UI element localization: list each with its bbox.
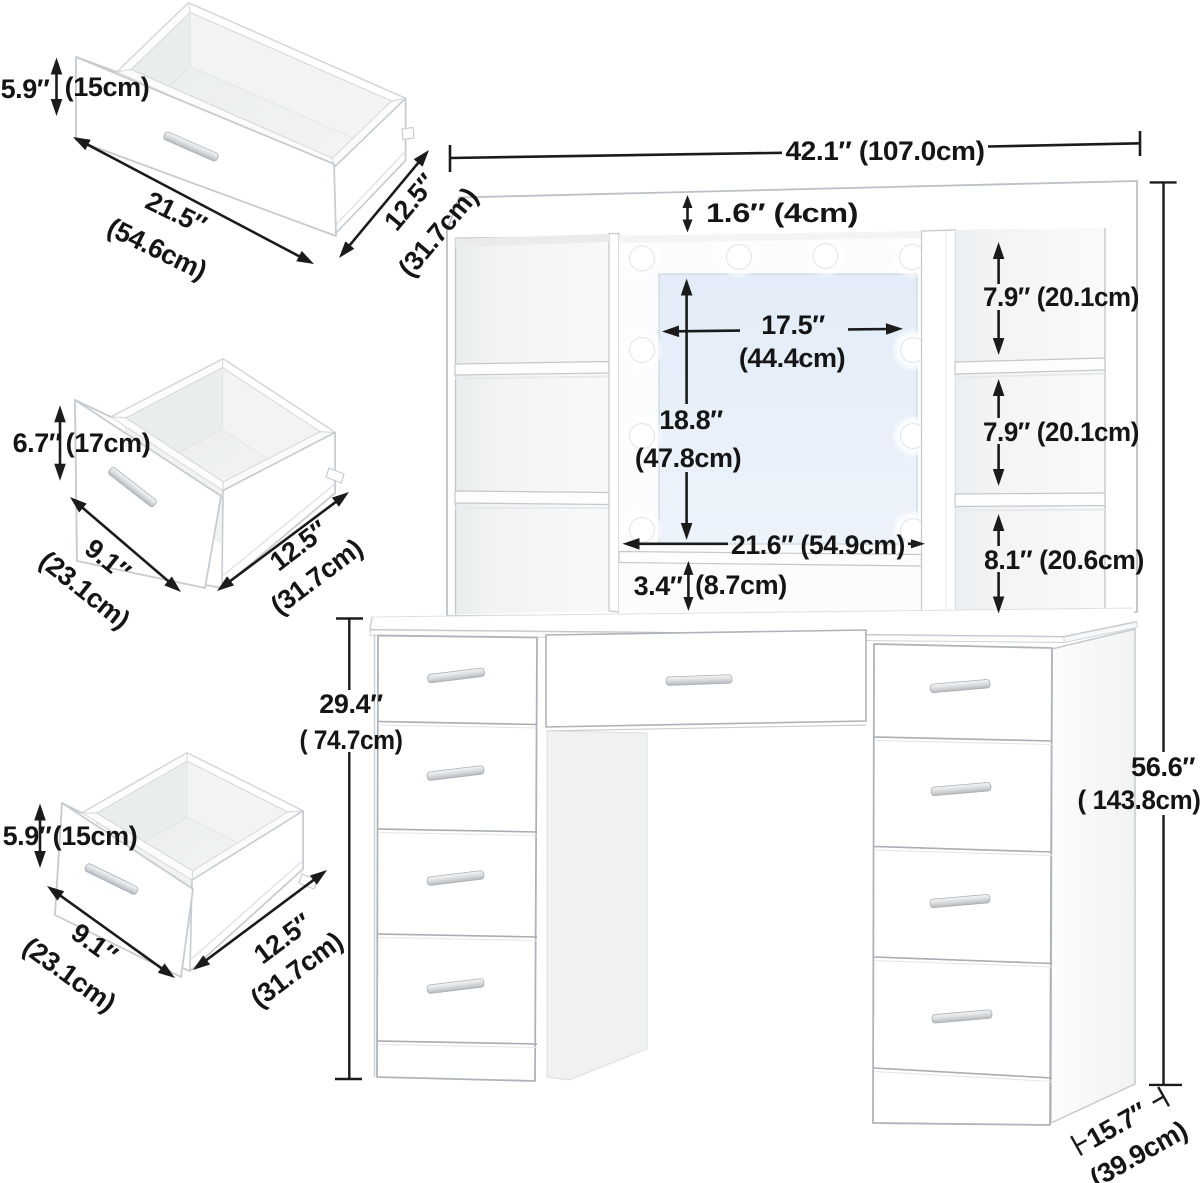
svg-text:(15cm): (15cm) [53, 821, 138, 851]
svg-text:7.9″ (20.1cm): 7.9″ (20.1cm) [983, 417, 1139, 447]
svg-text:6.7″: 6.7″ [13, 428, 62, 458]
svg-text:(15cm): (15cm) [65, 72, 150, 102]
svg-text:1.6″ (4cm): 1.6″ (4cm) [706, 198, 858, 228]
svg-text:( 143.8cm): ( 143.8cm) [1078, 785, 1200, 815]
svg-text:(17cm): (17cm) [66, 428, 151, 458]
svg-text:56.6″: 56.6″ [1131, 752, 1195, 782]
svg-text:18.8″: 18.8″ [659, 405, 723, 435]
svg-text:5.9″: 5.9″ [1, 74, 50, 104]
svg-text:(8.7cm): (8.7cm) [695, 570, 787, 600]
svg-text:( 74.7cm): ( 74.7cm) [300, 725, 403, 755]
svg-text:3.4″: 3.4″ [634, 571, 683, 601]
svg-text:7.9″ (20.1cm): 7.9″ (20.1cm) [983, 282, 1139, 312]
svg-text:5.9″: 5.9″ [3, 821, 52, 851]
svg-text:(47.8cm): (47.8cm) [635, 443, 741, 473]
svg-text:17.5″: 17.5″ [761, 310, 825, 340]
svg-text:8.1″ (20.6cm): 8.1″ (20.6cm) [984, 545, 1144, 575]
svg-text:21.6″ (54.9cm): 21.6″ (54.9cm) [731, 530, 905, 560]
svg-text:42.1″ (107.0cm): 42.1″ (107.0cm) [786, 136, 985, 166]
svg-text:(44.4cm): (44.4cm) [739, 343, 845, 373]
svg-text:29.4″: 29.4″ [319, 689, 383, 719]
